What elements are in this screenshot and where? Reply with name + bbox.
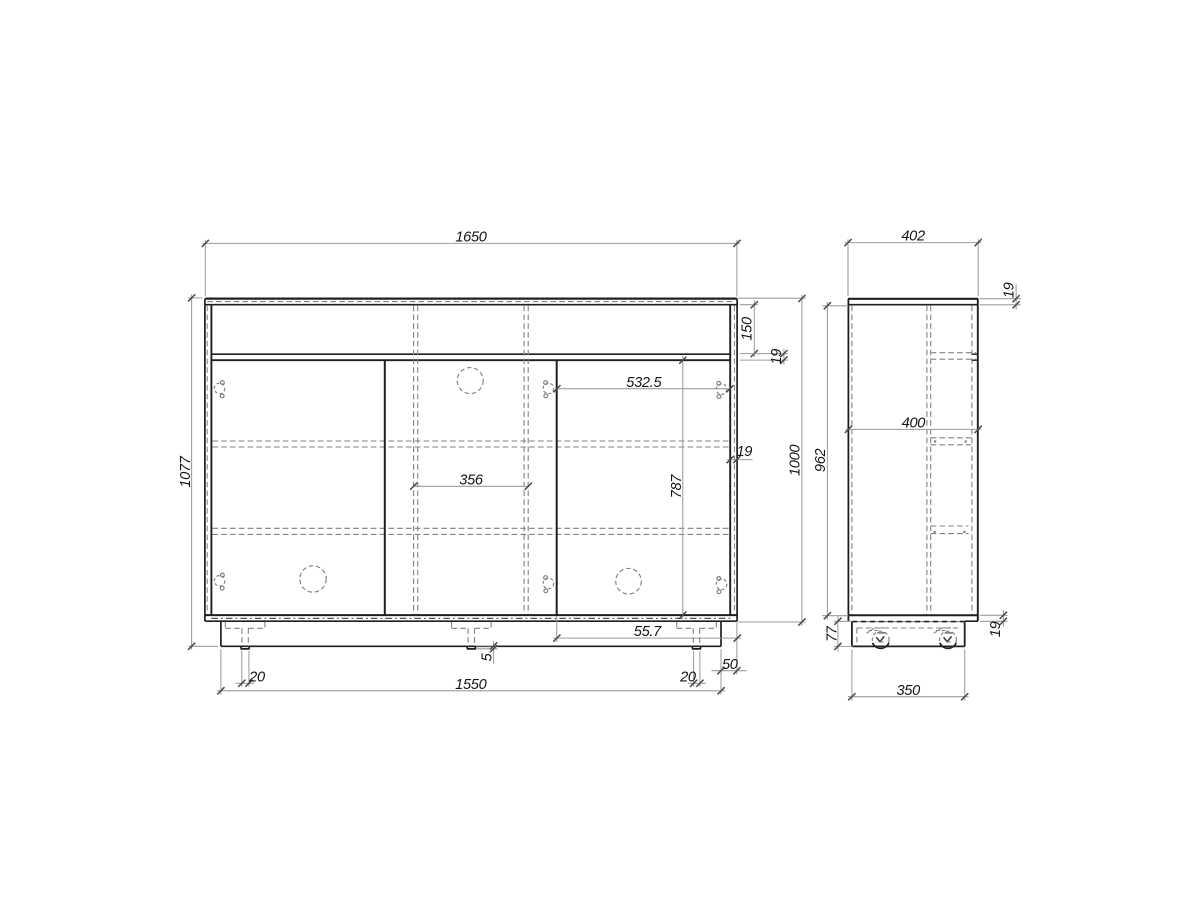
svg-text:962: 962 [813,448,829,472]
svg-text:402: 402 [901,229,925,245]
svg-text:19: 19 [769,349,785,365]
svg-text:1650: 1650 [455,230,486,246]
svg-text:19: 19 [1002,282,1018,298]
svg-text:1077: 1077 [178,455,194,487]
svg-text:150: 150 [740,317,756,341]
svg-text:19: 19 [988,621,1004,637]
svg-text:1550: 1550 [455,677,486,693]
svg-text:350: 350 [896,683,920,699]
svg-text:5: 5 [479,652,495,661]
svg-text:532.5: 532.5 [626,375,662,391]
svg-text:20: 20 [248,669,265,685]
svg-text:19: 19 [736,444,752,460]
svg-text:77: 77 [824,625,840,642]
svg-text:787: 787 [669,474,685,499]
svg-text:20: 20 [679,669,696,685]
svg-text:356: 356 [459,472,484,488]
svg-text:400: 400 [902,416,926,432]
svg-text:1000: 1000 [787,445,803,476]
svg-text:50: 50 [722,657,738,673]
svg-text:55.7: 55.7 [634,624,662,640]
